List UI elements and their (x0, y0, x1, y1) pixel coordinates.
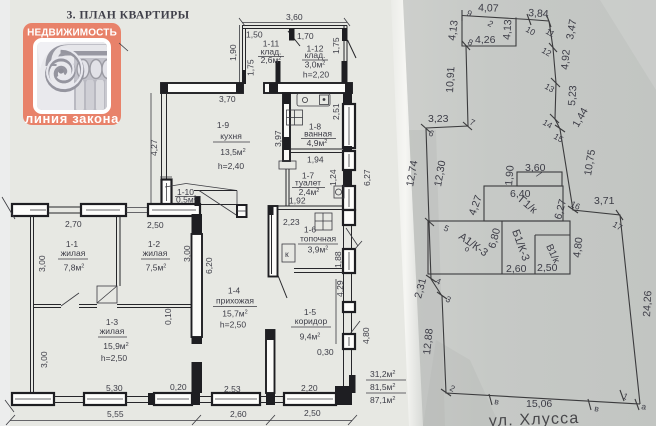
svg-text:1,24: 1,24 (328, 169, 338, 186)
svg-text:15,9м2: 15,9м2 (103, 341, 128, 351)
svg-text:13,5м2: 13,5м2 (220, 147, 245, 157)
svg-text:0,5м2: 0,5м2 (176, 195, 197, 205)
svg-text:9,4м2: 9,4м2 (300, 332, 321, 342)
svg-text:к: к (285, 249, 289, 259)
svg-text:0,20: 0,20 (170, 382, 187, 392)
svg-text:3,9м2: 3,9м2 (308, 245, 329, 255)
svg-text:1,94: 1,94 (307, 155, 324, 165)
svg-text:2,50: 2,50 (147, 220, 164, 230)
svg-text:жилая: жилая (143, 248, 168, 258)
svg-text:5,23: 5,23 (566, 85, 579, 106)
svg-text:81,5м2: 81,5м2 (370, 382, 395, 392)
svg-text:НЕДВИЖИМОСТЬ: НЕДВИЖИМОСТЬ (27, 28, 117, 39)
svg-text:5,55: 5,55 (107, 409, 124, 419)
svg-text:2,23: 2,23 (283, 217, 300, 227)
svg-text:4,80: 4,80 (571, 236, 585, 258)
svg-text:h=2,20: h=2,20 (303, 70, 330, 80)
svg-text:1-9: 1-9 (217, 120, 230, 130)
svg-text:ванная: ванная (304, 129, 332, 139)
svg-text:h=2,50: h=2,50 (101, 353, 128, 363)
svg-text:туалет: туалет (295, 178, 321, 188)
svg-text:4,29: 4,29 (335, 280, 345, 297)
svg-text:24,26: 24,26 (641, 290, 654, 317)
svg-text:2,6м2: 2,6м2 (261, 55, 282, 65)
svg-text:3,97: 3,97 (273, 130, 283, 147)
svg-text:31,2м2: 31,2м2 (370, 369, 395, 379)
svg-text:0,10: 0,10 (163, 308, 173, 325)
svg-text:87,1м2: 87,1м2 (370, 395, 395, 405)
svg-text:4,26: 4,26 (475, 34, 496, 46)
svg-text:2,53: 2,53 (224, 384, 241, 394)
svg-text:15,7м2: 15,7м2 (222, 309, 247, 319)
svg-text:2,20: 2,20 (301, 383, 318, 393)
svg-text:4,92: 4,92 (559, 49, 573, 71)
svg-text:3,70: 3,70 (219, 94, 236, 104)
svg-text:3,84: 3,84 (528, 7, 549, 20)
svg-text:7,5м2: 7,5м2 (146, 263, 167, 273)
svg-text:1,88: 1,88 (333, 251, 343, 268)
svg-text:4,80: 4,80 (361, 327, 371, 344)
svg-text:прихожая: прихожая (216, 296, 254, 306)
svg-text:2,50: 2,50 (304, 408, 321, 418)
svg-text:7,8м2: 7,8м2 (64, 263, 85, 273)
svg-text:h=2,40: h=2,40 (218, 161, 245, 171)
svg-text:ул. Хлусса: ул. Хлусса (489, 410, 580, 426)
svg-text:3,60: 3,60 (286, 12, 303, 22)
svg-text:4,07: 4,07 (478, 2, 499, 15)
svg-text:3,00: 3,00 (39, 351, 49, 368)
svg-text:1,50: 1,50 (246, 30, 263, 40)
svg-text:2,50: 2,50 (537, 262, 558, 274)
svg-text:3,60: 3,60 (525, 162, 546, 174)
svg-text:линия закона: линия закона (25, 111, 119, 126)
svg-text:1,75: 1,75 (246, 59, 256, 76)
svg-text:6,27: 6,27 (362, 169, 372, 186)
svg-text:жилая: жилая (61, 248, 86, 258)
svg-text:1,75: 1,75 (331, 37, 341, 54)
svg-text:3. ПЛАН КВАРТИРЫ: 3. ПЛАН КВАРТИРЫ (66, 9, 189, 22)
svg-text:3,71: 3,71 (594, 195, 615, 207)
svg-text:1,90: 1,90 (503, 165, 517, 187)
svg-text:3,00: 3,00 (37, 255, 47, 272)
svg-text:3,0м2: 3,0м2 (305, 60, 326, 70)
svg-text:1,92: 1,92 (289, 196, 306, 206)
svg-text:4,13: 4,13 (501, 19, 514, 40)
svg-text:коридор: коридор (295, 316, 328, 326)
svg-text:6,20: 6,20 (204, 257, 214, 274)
svg-text:4,9м2: 4,9м2 (307, 138, 328, 148)
svg-text:3,23: 3,23 (428, 113, 449, 125)
svg-text:2,51: 2,51 (331, 103, 341, 120)
svg-text:клад.: клад. (305, 50, 326, 60)
svg-text:жилая: жилая (100, 326, 125, 336)
svg-text:10,91: 10,91 (444, 66, 457, 93)
svg-text:топочная: топочная (300, 234, 337, 244)
svg-text:1,90: 1,90 (228, 44, 238, 61)
svg-text:2,60: 2,60 (230, 409, 247, 419)
svg-text:15,06: 15,06 (526, 398, 552, 410)
svg-text:1-4: 1-4 (228, 286, 241, 296)
svg-text:2,60: 2,60 (506, 263, 527, 275)
svg-text:h=2,50: h=2,50 (220, 320, 247, 330)
svg-text:5,30: 5,30 (106, 383, 123, 393)
svg-text:4,27: 4,27 (149, 139, 159, 156)
svg-text:3,00: 3,00 (182, 245, 192, 262)
svg-text:кухня: кухня (220, 131, 242, 141)
svg-text:0,30: 0,30 (317, 347, 334, 357)
svg-text:1,70: 1,70 (297, 31, 314, 41)
svg-text:2,70: 2,70 (65, 219, 82, 229)
